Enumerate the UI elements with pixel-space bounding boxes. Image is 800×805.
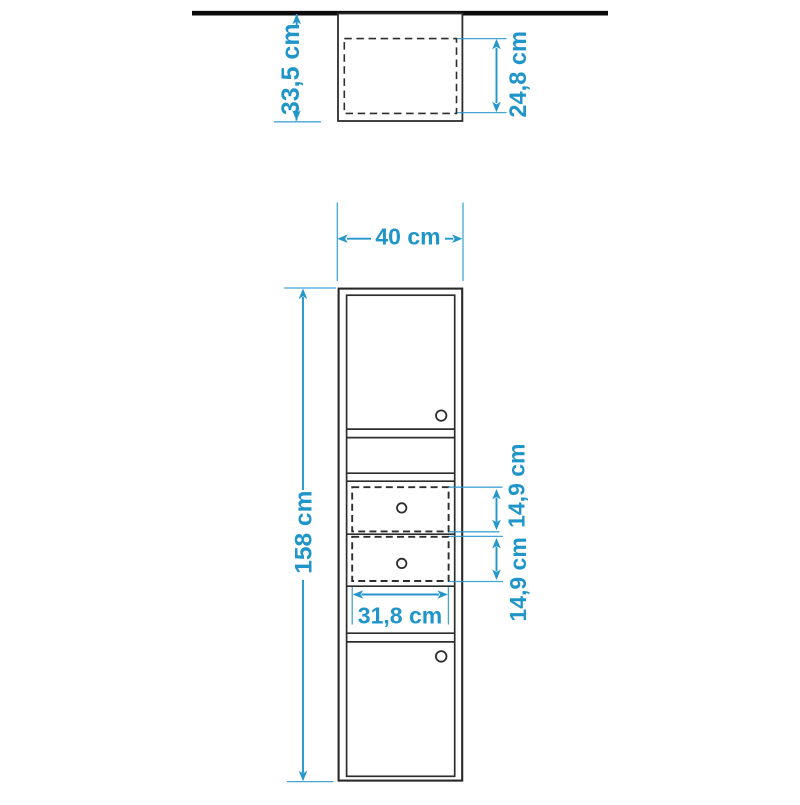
svg-text:24,8 cm: 24,8 cm	[506, 31, 532, 118]
svg-text:158 cm: 158 cm	[291, 491, 318, 574]
svg-text:33,5 cm: 33,5 cm	[277, 23, 305, 115]
svg-text:14,9 cm: 14,9 cm	[503, 443, 529, 527]
svg-text:14,9 cm: 14,9 cm	[505, 537, 531, 621]
svg-text:40 cm: 40 cm	[375, 224, 440, 250]
svg-text:31,8 cm: 31,8 cm	[358, 603, 442, 629]
